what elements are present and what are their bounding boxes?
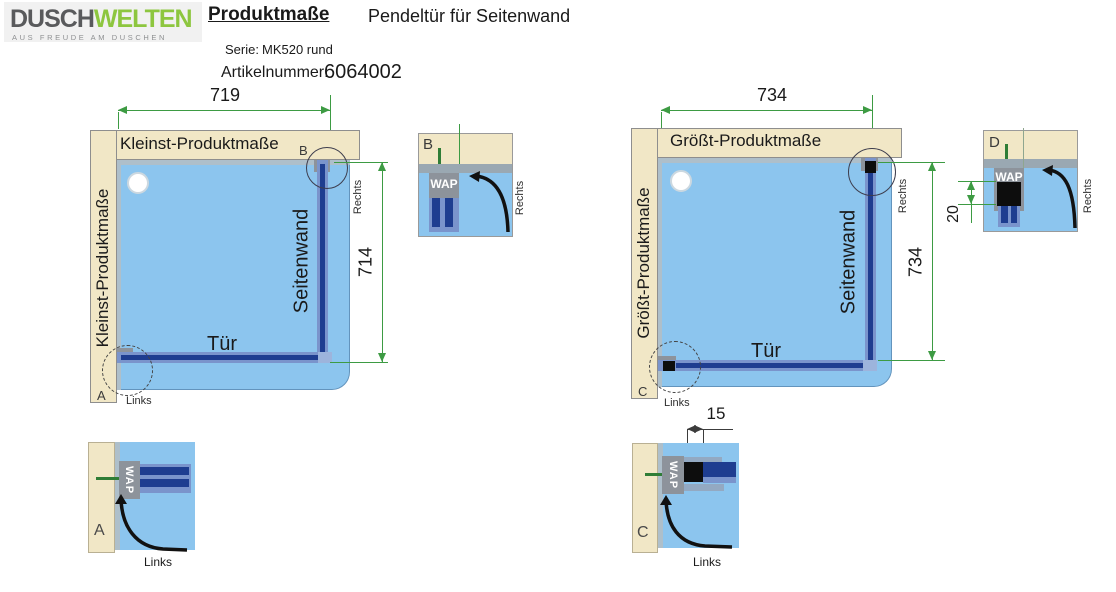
dim-arrow-right-icon xyxy=(694,425,703,433)
document-page: DUSCHWELTEN AUS FREUDE AM DUSCHEN Produk… xyxy=(0,0,1116,592)
detail-label-c: C xyxy=(637,524,649,542)
wap-profile-label: WAP xyxy=(667,461,679,489)
detail-view-c: 15 WAP C Links xyxy=(0,0,1116,592)
spacer-block xyxy=(684,462,703,482)
glass-casing xyxy=(703,477,736,483)
ref-line xyxy=(645,473,662,476)
links-label: Links xyxy=(677,555,737,569)
glass-casing xyxy=(684,484,724,491)
dim-tail-line xyxy=(703,429,733,430)
dim-gap-value: 15 xyxy=(701,404,731,424)
door-swing-arrow-icon xyxy=(658,495,736,553)
glass-pane xyxy=(703,462,736,477)
detail-box-c: WAP C Links xyxy=(632,443,739,553)
